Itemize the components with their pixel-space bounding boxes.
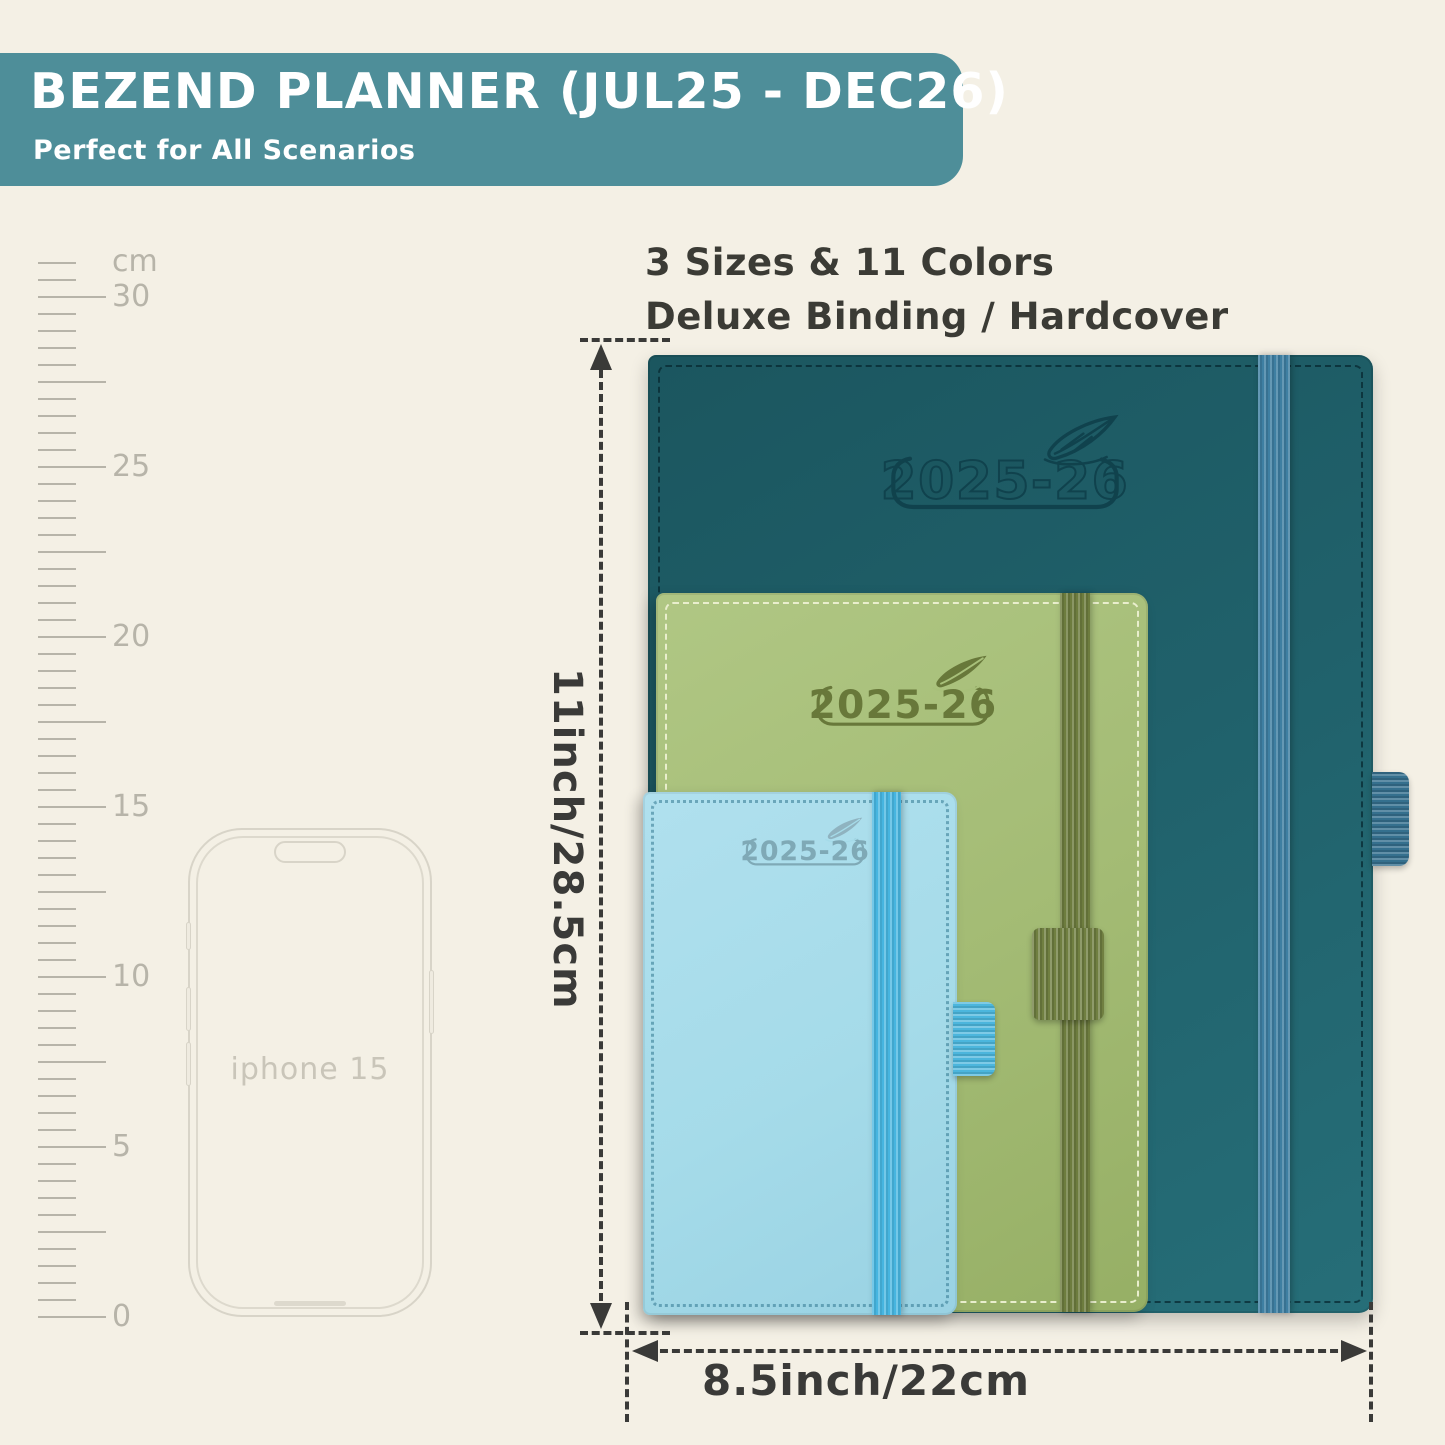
ruler-tick <box>38 993 76 995</box>
ruler-tick <box>38 1078 76 1080</box>
ruler-tick <box>38 398 76 400</box>
ruler-tick <box>38 1129 76 1131</box>
ruler-tick <box>38 925 76 927</box>
ruler-tick <box>38 432 76 434</box>
ruler-tick <box>38 653 76 655</box>
ruler-tick <box>38 1231 106 1233</box>
ruler-tick <box>38 670 76 672</box>
ruler-tick <box>38 279 76 281</box>
iphone-label: iphone 15 <box>190 1052 430 1087</box>
pen-loop <box>1372 772 1409 866</box>
dynamic-island <box>274 841 346 863</box>
ruler-tick <box>38 364 76 366</box>
ruler-tick <box>38 755 76 757</box>
home-indicator <box>274 1301 346 1306</box>
year-label: 2025-26 <box>881 452 1130 512</box>
ruler-tick <box>38 313 76 315</box>
ruler-tick <box>38 806 106 808</box>
ruler-value-label: 20 <box>112 619 150 655</box>
ruler-tick <box>38 585 76 587</box>
ruler-tick <box>38 1197 76 1199</box>
elastic-band <box>872 792 901 1315</box>
ruler-tick <box>38 1265 76 1267</box>
ruler-tick <box>38 942 76 944</box>
headline-line2: Deluxe Binding / Hardcover <box>645 290 1229 344</box>
ruler-tick <box>38 568 76 570</box>
ruler-tick <box>38 1112 76 1114</box>
planner-logo: 2025-26 <box>740 815 870 871</box>
ruler-tick <box>38 1010 76 1012</box>
ruler-tick <box>38 381 106 383</box>
arrow-down-icon <box>590 1303 612 1329</box>
height-dimension-line <box>599 358 603 1313</box>
ruler-tick <box>38 891 106 893</box>
ruler-tick <box>38 1180 76 1182</box>
ruler-tick <box>38 823 76 825</box>
ruler-tick <box>38 500 76 502</box>
ruler-value-label: 5 <box>112 1129 131 1165</box>
ruler-tick <box>38 517 76 519</box>
headline-line1: 3 Sizes & 11 Colors <box>645 236 1229 290</box>
product-image: BEZEND PLANNER (JUL25 - DEC26) Perfect f… <box>0 0 1445 1445</box>
ruler-tick <box>38 959 76 961</box>
ruler-tick <box>38 874 76 876</box>
ruler-tick <box>38 908 76 910</box>
arrow-left-icon <box>632 1340 658 1362</box>
ruler-tick <box>38 466 106 468</box>
ruler-value-label: 10 <box>112 959 150 995</box>
ruler-tick <box>38 347 76 349</box>
ruler-tick <box>38 415 76 417</box>
ruler-tick <box>38 296 106 298</box>
ruler-tick <box>38 840 76 842</box>
planner-logo: 2025-26 <box>880 412 1130 520</box>
ruler-tick <box>38 1316 106 1318</box>
ruler-tick <box>38 636 106 638</box>
ruler-tick <box>38 534 76 536</box>
year-label: 2025-26 <box>808 683 997 728</box>
width-dimension-line <box>648 1349 1350 1353</box>
ruler-tick <box>38 1214 76 1216</box>
height-dimension-label: 11inch/28.5cm <box>541 668 593 988</box>
iphone-outline: iphone 15 <box>188 828 432 1317</box>
ruler-value-label: 0 <box>112 1299 131 1335</box>
width-left-guide <box>625 1302 629 1422</box>
arrow-up-icon <box>590 344 612 370</box>
ruler-unit-label: cm <box>112 244 158 280</box>
ruler-value-label: 30 <box>112 279 150 315</box>
planner-small: 2025-26 <box>643 792 957 1315</box>
ruler-tick <box>38 738 76 740</box>
volume-up-button <box>186 987 191 1031</box>
ruler-tick <box>38 704 76 706</box>
ruler-tick <box>38 1095 76 1097</box>
ruler-value-label: 25 <box>112 449 150 485</box>
ruler-tick <box>38 721 106 723</box>
headline: 3 Sizes & 11 Colors Deluxe Binding / Har… <box>645 236 1229 344</box>
pen-loop <box>953 1002 995 1076</box>
planner-logo: 2025-26 <box>808 652 998 734</box>
mute-switch <box>186 922 191 950</box>
ruler-tick <box>38 1044 76 1046</box>
ruler-tick <box>38 857 76 859</box>
ruler-tick <box>38 1299 76 1301</box>
ruler-tick <box>38 262 76 264</box>
power-button <box>429 970 434 1034</box>
ruler-tick <box>38 1146 106 1148</box>
ruler-tick <box>38 789 76 791</box>
ruler-tick <box>38 772 76 774</box>
ruler-tick <box>38 449 76 451</box>
year-label: 2025-26 <box>740 836 869 867</box>
ruler-tick <box>38 687 76 689</box>
ruler-tick <box>38 619 76 621</box>
ruler-tick <box>38 1163 76 1165</box>
ruler-tick <box>38 976 106 978</box>
width-right-guide <box>1369 1302 1373 1422</box>
stitching <box>651 800 949 1307</box>
ruler-tick <box>38 1282 76 1284</box>
elastic-band <box>1258 355 1290 1313</box>
ruler-tick <box>38 602 76 604</box>
ruler: cm 302520151050 <box>0 0 190 1445</box>
arrow-right-icon <box>1341 1340 1367 1362</box>
ruler-tick <box>38 551 106 553</box>
height-top-guide <box>580 338 670 342</box>
ruler-tick <box>38 1248 76 1250</box>
ruler-tick <box>38 330 76 332</box>
pen-loop <box>1032 928 1104 1020</box>
ruler-value-label: 15 <box>112 789 150 825</box>
ruler-tick <box>38 1061 106 1063</box>
ruler-tick <box>38 1027 76 1029</box>
width-dimension-label: 8.5inch/22cm <box>666 1356 1066 1405</box>
ruler-tick <box>38 483 76 485</box>
